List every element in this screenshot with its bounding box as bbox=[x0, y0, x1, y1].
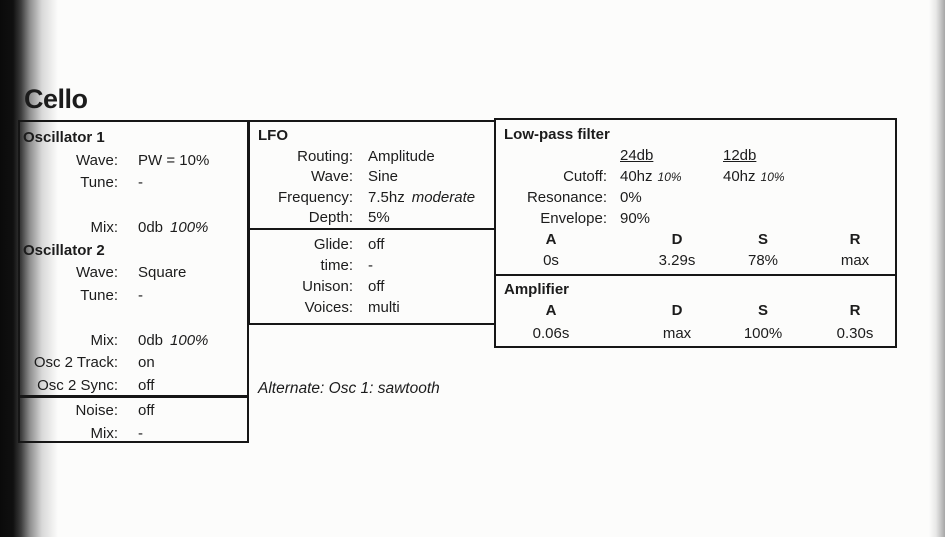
field-label: Unison: bbox=[250, 276, 353, 297]
attack-value: 0s bbox=[501, 250, 601, 271]
sustain-header: S bbox=[713, 229, 813, 250]
field-value: Sine bbox=[353, 167, 398, 188]
blank-row bbox=[20, 307, 247, 330]
field-label: Routing: bbox=[250, 147, 353, 168]
page-edge-shadow bbox=[929, 0, 945, 537]
decay-header: D bbox=[627, 300, 727, 321]
osc2-sync-row: Osc 2 Sync: off bbox=[20, 375, 247, 398]
italic-note: 10% bbox=[658, 170, 682, 184]
glide-time-row: time: - bbox=[250, 255, 494, 276]
voices-row: Voices: multi bbox=[250, 297, 494, 318]
blank-row bbox=[20, 195, 247, 218]
decay-header: D bbox=[627, 229, 727, 250]
field-value: Amplitude bbox=[353, 147, 435, 168]
amp-adsr-values-row: 0.06s max 100% 0.30s bbox=[496, 323, 895, 344]
amplifier-heading: Amplifier bbox=[496, 279, 895, 300]
slope-12db-header: 12db bbox=[723, 147, 756, 164]
sustain-header: S bbox=[713, 300, 813, 321]
field-value: 0db100% bbox=[118, 217, 208, 240]
sustain-value: 100% bbox=[713, 323, 813, 344]
attack-header: A bbox=[501, 300, 601, 321]
amplifier-box: Amplifier A D S R 0.06s max 100% 0.30s bbox=[494, 274, 897, 348]
field-label: Mix: bbox=[20, 423, 118, 446]
field-label: Envelope: bbox=[496, 208, 607, 229]
osc2-mix-row: Mix: 0db100% bbox=[20, 330, 247, 353]
field-label: Glide: bbox=[250, 234, 353, 255]
lfo-heading: LFO bbox=[250, 126, 494, 147]
lfo-depth-row: Depth: 5% bbox=[250, 208, 494, 229]
cutoff-12db-value: 40hz10% bbox=[723, 166, 895, 187]
patch-title: Cello bbox=[24, 84, 88, 115]
field-value: - bbox=[118, 423, 143, 446]
oscillator1-heading: Oscillator 1 bbox=[20, 127, 247, 150]
noise-box: Noise: off Mix: - bbox=[18, 395, 249, 443]
sustain-value: 78% bbox=[713, 250, 813, 271]
field-value: 90% bbox=[607, 208, 723, 229]
unison-row: Unison: off bbox=[250, 276, 494, 297]
field-value: Square bbox=[118, 262, 186, 285]
italic-note: moderate bbox=[412, 189, 475, 206]
osc1-tune-row: Tune: - bbox=[20, 172, 247, 195]
field-label: Tune: bbox=[20, 285, 118, 308]
field-value: - bbox=[118, 172, 143, 195]
field-label: Mix: bbox=[20, 330, 118, 353]
field-value: 0% bbox=[607, 187, 723, 208]
lfo-wave-row: Wave: Sine bbox=[250, 167, 494, 188]
glide-box: Glide: off time: - Unison: off Voices: m… bbox=[248, 228, 496, 325]
amp-adsr-header-row: A D S R bbox=[496, 300, 895, 321]
field-label: Wave: bbox=[20, 150, 118, 173]
field-value: off bbox=[118, 400, 154, 423]
lfo-box: LFO Routing: Amplitude Wave: Sine Freque… bbox=[248, 120, 496, 230]
slope-24db-header: 24db bbox=[620, 147, 653, 164]
field-value: multi bbox=[353, 297, 400, 318]
field-label: time: bbox=[250, 255, 353, 276]
scanned-patch-sheet-page: Cello Oscillator 1 Wave: PW = 10% Tune: … bbox=[0, 0, 945, 537]
field-label: Voices: bbox=[250, 297, 353, 318]
field-label: Frequency: bbox=[250, 188, 353, 209]
italic-note: 10% bbox=[761, 170, 785, 184]
decay-value: max bbox=[627, 323, 727, 344]
field-value: off bbox=[353, 276, 384, 297]
osc1-wave-row: Wave: PW = 10% bbox=[20, 150, 247, 173]
field-label: Wave: bbox=[250, 167, 353, 188]
release-value: max bbox=[805, 250, 905, 271]
field-label: Wave: bbox=[20, 262, 118, 285]
italic-note: 100% bbox=[170, 219, 208, 236]
release-value: 0.30s bbox=[805, 323, 905, 344]
osc1-mix-row: Mix: 0db100% bbox=[20, 217, 247, 240]
noise-mix-row: Mix: - bbox=[20, 423, 247, 446]
field-value: 5% bbox=[353, 208, 390, 229]
field-label: Depth: bbox=[250, 208, 353, 229]
field-label: Osc 2 Sync: bbox=[20, 375, 118, 398]
field-value: 0db100% bbox=[118, 330, 208, 353]
italic-note: 100% bbox=[170, 332, 208, 349]
alternate-note: Alternate: Osc 1: sawtooth bbox=[258, 380, 440, 398]
noise-row: Noise: off bbox=[20, 400, 247, 423]
decay-value: 3.29s bbox=[627, 250, 727, 271]
field-label: Mix: bbox=[20, 217, 118, 240]
oscillator2-heading: Oscillator 2 bbox=[20, 240, 247, 263]
field-label: Cutoff: bbox=[496, 166, 607, 187]
release-header: R bbox=[805, 300, 905, 321]
field-value: off bbox=[353, 234, 384, 255]
lfo-routing-row: Routing: Amplitude bbox=[250, 147, 494, 168]
filter-adsr-header-row: A D S R bbox=[496, 229, 895, 250]
field-value: 7.5hzmoderate bbox=[353, 188, 475, 209]
attack-value: 0.06s bbox=[501, 323, 601, 344]
field-value: off bbox=[118, 375, 154, 398]
oscillator-box: Oscillator 1 Wave: PW = 10% Tune: - Mix:… bbox=[18, 120, 249, 397]
attack-header: A bbox=[501, 229, 601, 250]
filter-slope-header-row: 24db 12db bbox=[496, 145, 895, 166]
field-label: Osc 2 Track: bbox=[20, 352, 118, 375]
release-header: R bbox=[805, 229, 905, 250]
osc2-tune-row: Tune: - bbox=[20, 285, 247, 308]
field-label: Tune: bbox=[20, 172, 118, 195]
osc2-track-row: Osc 2 Track: on bbox=[20, 352, 247, 375]
envelope-row: Envelope: 90% bbox=[496, 208, 895, 229]
cutoff-row: Cutoff: 40hz10% 40hz10% bbox=[496, 166, 895, 187]
low-pass-filter-box: Low-pass filter 24db 12db Cutoff: 40hz10… bbox=[494, 118, 897, 276]
osc2-wave-row: Wave: Square bbox=[20, 262, 247, 285]
lfo-frequency-row: Frequency: 7.5hzmoderate bbox=[250, 188, 494, 209]
field-label: Resonance: bbox=[496, 187, 607, 208]
cutoff-24db-value: 40hz10% bbox=[607, 166, 723, 187]
glide-row: Glide: off bbox=[250, 234, 494, 255]
field-value: - bbox=[353, 255, 373, 276]
field-value: PW = 10% bbox=[118, 150, 209, 173]
filter-heading: Low-pass filter bbox=[496, 124, 895, 145]
resonance-row: Resonance: 0% bbox=[496, 187, 895, 208]
filter-adsr-values-row: 0s 3.29s 78% max bbox=[496, 250, 895, 271]
field-label: Noise: bbox=[20, 400, 118, 423]
field-value: on bbox=[118, 352, 155, 375]
field-value: - bbox=[118, 285, 143, 308]
